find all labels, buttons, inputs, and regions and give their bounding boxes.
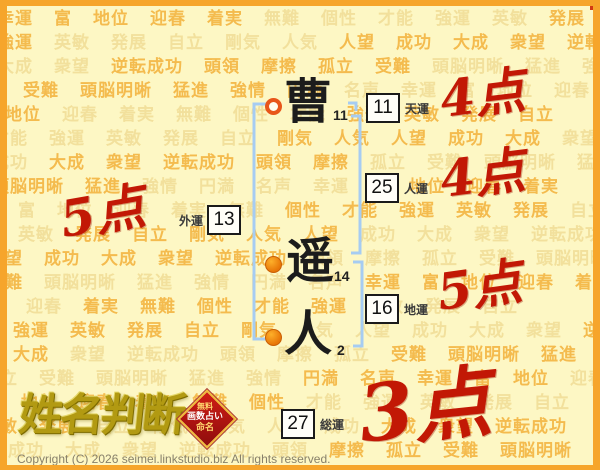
badge-text: 無料 画数占い 命名 (175, 387, 235, 447)
earth-luck-box: 16 地運 (365, 294, 428, 324)
corner-accent (590, 0, 600, 10)
surname-char: 曹 (284, 79, 332, 127)
badge-line-1: 無料 (197, 402, 213, 411)
site-logo[interactable]: 姓名判断 (17, 394, 186, 438)
background-word: 地位 (0, 298, 5, 315)
given2-marker-dot (265, 329, 282, 346)
earth-luck-label: 地運 (404, 301, 428, 318)
outer-luck-label: 外運 (179, 212, 203, 229)
given-char-1: 遥 (286, 238, 334, 286)
person-luck-box: 25 人運 (365, 173, 428, 203)
surname-stroke-count: 11 (333, 107, 348, 123)
surname-marker-ring (265, 98, 282, 115)
heaven-luck-label: 天運 (405, 100, 429, 117)
earth-luck-value: 16 (365, 294, 399, 324)
background-word: 孤立 (0, 82, 2, 99)
total-luck-score: 3点 (356, 367, 495, 451)
given-char-1-stroke-count: 14 (334, 268, 350, 284)
badge-line-2: 画数占い (187, 411, 223, 421)
earth-luck-score: 5点 (434, 258, 524, 314)
person-luck-score: 4点 (438, 147, 528, 202)
person-luck-value: 25 (365, 173, 399, 203)
total-luck-box: 27 総運 (281, 409, 344, 439)
total-luck-value: 27 (281, 409, 315, 439)
total-luck-label: 総運 (320, 416, 344, 433)
free-naming-badge[interactable]: 無料 画数占い 命名 (175, 387, 235, 447)
badge-line-3: 命名 (196, 422, 214, 432)
heaven-luck-box: 11 天運 (366, 93, 429, 123)
heaven-luck-value: 11 (366, 93, 400, 123)
outer-luck-score: 5点 (57, 183, 148, 242)
heaven-luck-score: 4点 (438, 67, 528, 122)
copyright-text: Copyright (C) 2026 seimei.linkstudio.biz… (17, 452, 330, 466)
outer-luck-box: 13 外運 (179, 205, 241, 235)
given-char-2-stroke-count: 2 (337, 342, 345, 358)
person-luck-label: 人運 (404, 180, 428, 197)
outer-luck-value: 13 (207, 205, 241, 235)
background-word: 猛進 (593, 442, 600, 459)
seimei-result-page: 幸運富地位迎春着実無難個性才能強運英敏発展自立才能強運英敏発展自立剛気人気人望成… (0, 0, 600, 470)
given-char-2: 人 (284, 311, 332, 359)
given1-marker-dot (265, 256, 282, 273)
